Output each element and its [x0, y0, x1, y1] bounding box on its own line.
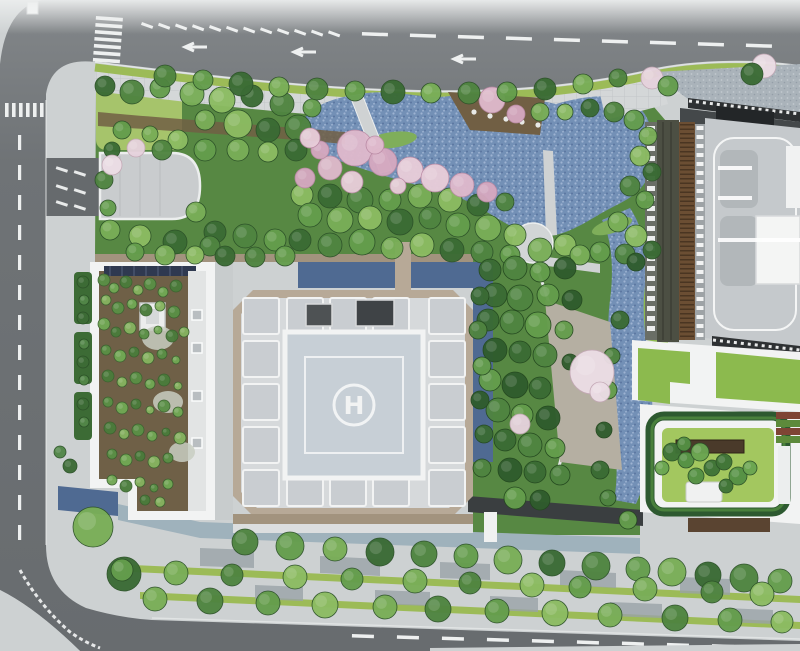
tree-highlight — [294, 187, 304, 197]
tree-highlight — [104, 398, 109, 403]
tree-highlight — [158, 350, 163, 355]
tree-highlight — [645, 243, 653, 251]
tree-highlight — [141, 496, 146, 501]
center-dash — [18, 315, 21, 330]
tree-highlight — [475, 461, 483, 469]
tree-highlight — [80, 340, 85, 345]
tree-highlight — [521, 436, 532, 447]
crosswalk-bar — [40, 103, 44, 117]
tree-highlight — [548, 441, 557, 450]
tree-highlight — [629, 255, 637, 263]
tree-highlight — [56, 448, 61, 453]
tree-highlight — [140, 330, 145, 335]
tree-highlight — [537, 81, 547, 91]
tree-highlight — [167, 564, 178, 575]
tree-highlight — [557, 323, 565, 331]
tree-highlight — [613, 313, 621, 321]
tree-highlight — [286, 568, 297, 579]
tree-highlight — [128, 245, 136, 253]
tree-highlight — [665, 608, 677, 620]
tower-south-terrace — [233, 524, 473, 533]
tree-highlight — [116, 352, 121, 357]
tree-highlight — [545, 603, 557, 615]
tree-highlight — [278, 249, 287, 258]
helipad-label: H — [344, 391, 365, 420]
tree-highlight — [486, 341, 497, 352]
tree-highlight — [136, 478, 141, 483]
tree-highlight — [106, 424, 111, 429]
tree-highlight — [79, 358, 84, 363]
tree-highlight — [553, 468, 562, 477]
tree-highlight — [114, 562, 124, 572]
tree-highlight — [197, 142, 207, 152]
tree-highlight — [443, 241, 454, 252]
tree-highlight — [305, 101, 313, 109]
tree-highlight — [531, 241, 542, 252]
tree-highlight — [576, 77, 585, 86]
tree-highlight — [665, 445, 673, 453]
tree-highlight — [155, 143, 164, 152]
tree-highlight — [441, 191, 452, 202]
tree-highlight — [721, 481, 727, 487]
tree-highlight — [536, 346, 547, 357]
tree-highlight — [565, 293, 574, 302]
center-dash — [18, 375, 21, 390]
tree-highlight — [623, 179, 632, 188]
tree-highlight — [482, 90, 494, 102]
tree-highlight — [633, 149, 642, 158]
tree-highlight — [453, 176, 464, 187]
center-dash — [18, 255, 21, 270]
center-dash — [18, 165, 21, 180]
tree-highlight — [288, 118, 300, 130]
tree-highlight — [155, 327, 159, 331]
tree-highlight — [657, 463, 663, 469]
tree-highlight — [480, 312, 490, 322]
tree-highlight — [200, 591, 212, 603]
louvered-band — [657, 120, 679, 342]
tree-highlight — [163, 429, 167, 433]
tree-highlight — [498, 550, 511, 563]
tree-highlight — [120, 430, 125, 435]
tree-highlight — [557, 260, 567, 270]
crosswalk-bar — [19, 103, 23, 117]
tree-highlight — [132, 228, 142, 238]
tree-highlight — [280, 536, 293, 549]
center-dash — [18, 435, 21, 450]
equipment-well — [306, 304, 332, 326]
tree-highlight — [583, 101, 591, 109]
tree-highlight — [175, 383, 179, 387]
tree-highlight — [102, 296, 107, 301]
tree-highlight — [103, 223, 112, 232]
tree-highlight — [224, 567, 234, 577]
tree-highlight — [130, 348, 135, 353]
tree-highlight — [115, 123, 123, 131]
tree-highlight — [598, 424, 605, 431]
tree-highlight — [65, 461, 71, 467]
tree-highlight — [203, 239, 212, 248]
tree-highlight — [108, 450, 113, 455]
tree-highlight — [102, 346, 107, 351]
tree-highlight — [344, 571, 354, 581]
tree-highlight — [97, 173, 105, 181]
tree-highlight — [745, 463, 751, 469]
tree-highlight — [80, 376, 85, 381]
timber-slat-band — [679, 122, 695, 340]
tree-highlight — [196, 73, 205, 82]
tree-highlight — [505, 375, 517, 387]
site-plan-rendering: H — [0, 0, 800, 651]
tree-highlight — [475, 359, 483, 367]
tree-highlight — [680, 454, 687, 461]
tree-highlight — [601, 606, 612, 617]
center-dash — [18, 345, 21, 360]
tree-highlight — [228, 114, 241, 127]
tree-highlight — [507, 490, 517, 500]
crosswalk-bar — [33, 103, 37, 117]
tree-highlight — [507, 227, 517, 237]
center-dash — [18, 195, 21, 210]
tree-highlight — [330, 210, 342, 222]
street-planter — [688, 518, 770, 532]
tree-highlight — [542, 553, 554, 565]
tree-highlight — [156, 302, 161, 307]
tree-highlight — [174, 408, 179, 413]
tree-highlight — [122, 482, 127, 487]
tree-highlight — [198, 113, 207, 122]
tree-highlight — [753, 585, 764, 596]
crosswalk-bar — [5, 103, 9, 117]
crosswalk-bar — [12, 103, 16, 117]
tree-highlight — [618, 247, 627, 256]
tree-highlight — [474, 244, 484, 254]
tree-highlight — [144, 354, 149, 359]
center-dash — [18, 135, 21, 150]
tree-highlight — [315, 595, 327, 607]
tree-highlight — [309, 81, 319, 91]
tree-highlight — [471, 323, 479, 331]
tree-highlight — [151, 485, 155, 489]
tree-highlight — [126, 324, 131, 329]
tree-highlight — [342, 135, 358, 151]
tree-highlight — [80, 418, 85, 423]
tree-highlight — [301, 206, 312, 217]
tree-highlight — [236, 227, 247, 238]
tree-highlight — [348, 84, 357, 93]
parking-driveway — [45, 153, 200, 219]
tree-highlight — [259, 594, 270, 605]
tree-highlight — [503, 313, 514, 324]
tree-highlight — [288, 142, 298, 152]
tree-highlight — [489, 401, 500, 412]
tree-highlight — [533, 105, 541, 113]
tree-highlight — [693, 445, 701, 453]
tree-highlight — [470, 197, 480, 207]
tree-highlight — [207, 224, 217, 234]
tree-highlight — [498, 195, 506, 203]
tree-highlight — [132, 374, 137, 379]
tree-highlight — [100, 276, 105, 281]
tree-highlight — [176, 434, 181, 439]
tree-highlight — [607, 105, 616, 114]
tree-highlight — [611, 215, 620, 224]
center-dash — [18, 525, 21, 540]
tree-highlight — [645, 165, 653, 173]
tower-module — [243, 298, 279, 334]
tree-highlight — [164, 454, 169, 459]
tree-highlight — [102, 202, 109, 209]
tree-highlight — [477, 427, 485, 435]
tower-module — [429, 384, 465, 420]
center-dash — [18, 405, 21, 420]
tree-highlight — [146, 380, 151, 385]
tree-highlight — [513, 417, 522, 426]
tree-highlight — [361, 209, 372, 220]
tree-highlight — [144, 128, 151, 135]
tower-south-wall — [233, 514, 473, 524]
tree-highlight — [611, 71, 619, 79]
tree-highlight — [704, 584, 714, 594]
tower-module — [429, 298, 465, 334]
tree-highlight — [352, 232, 364, 244]
tree-highlight — [159, 288, 164, 293]
tree-highlight — [172, 282, 177, 287]
tree-highlight — [698, 565, 710, 577]
tree-highlight — [478, 218, 490, 230]
tree-highlight — [721, 611, 732, 622]
tree-highlight — [528, 315, 540, 327]
tree-highlight — [188, 248, 196, 256]
tree-highlight — [506, 259, 517, 270]
tower-module — [429, 470, 465, 506]
court-pad-2 — [720, 216, 758, 286]
tree-highlight — [533, 265, 542, 274]
court-walk — [778, 446, 790, 504]
tree-highlight — [662, 562, 675, 575]
tree-highlight — [638, 193, 646, 201]
tree-highlight — [118, 378, 123, 383]
tree-highlight — [267, 232, 277, 242]
tree-highlight — [510, 288, 522, 300]
tree-highlight — [413, 236, 424, 247]
driveway-approach — [45, 158, 103, 216]
tree-highlight — [171, 133, 180, 142]
tree-highlight — [731, 469, 739, 477]
tree-highlight — [641, 129, 649, 137]
tree-highlight — [532, 380, 542, 390]
tree-highlight — [123, 83, 134, 94]
north-moat — [298, 262, 473, 288]
tree-highlight — [572, 579, 582, 589]
tree-highlight — [661, 79, 670, 88]
tree-highlight — [321, 236, 332, 247]
tower-module — [243, 341, 279, 377]
tower-module — [243, 384, 279, 420]
tree-highlight — [414, 544, 426, 556]
tree-highlight — [298, 171, 307, 180]
tree-highlight — [384, 83, 395, 94]
center-dash — [18, 465, 21, 480]
tree-highlight — [734, 568, 747, 581]
tree-highlight — [406, 572, 417, 583]
tree-highlight — [509, 107, 517, 115]
center-dash — [18, 495, 21, 510]
central-tower: H — [215, 262, 473, 533]
tree-highlight — [384, 240, 394, 250]
tree-highlight — [132, 400, 137, 405]
tree-highlight — [170, 308, 175, 313]
tree-highlight — [104, 372, 109, 377]
tree-highlight — [303, 131, 312, 140]
tree-highlight — [189, 205, 198, 214]
tree-highlight — [259, 121, 270, 132]
tree-highlight — [593, 463, 601, 471]
tree-highlight — [160, 376, 165, 381]
lawn-panel-east — [716, 352, 800, 404]
tree-highlight — [150, 458, 155, 463]
tree-highlight — [78, 512, 96, 530]
tree-highlight — [146, 280, 151, 285]
tree-highlight — [488, 602, 499, 613]
tree-highlight — [112, 328, 117, 333]
tree-highlight — [503, 248, 512, 257]
tree-highlight — [370, 542, 383, 555]
tree-highlight — [636, 580, 647, 591]
tree-highlight — [382, 192, 392, 202]
tree-highlight — [164, 480, 169, 485]
tree-highlight — [129, 141, 137, 149]
tower-module — [429, 341, 465, 377]
tree-highlight — [392, 180, 399, 187]
tower-west-walk — [215, 262, 233, 520]
tree-highlight — [79, 314, 84, 319]
tree-highlight — [173, 357, 177, 361]
tree-highlight — [422, 210, 432, 220]
tree-highlight — [593, 385, 602, 394]
tree-highlight — [158, 248, 167, 257]
tree-highlight — [180, 328, 185, 333]
tree-highlight — [128, 300, 133, 305]
tree-highlight — [106, 144, 113, 151]
tree-highlight — [533, 493, 542, 502]
tree-highlight — [136, 452, 141, 457]
tree-highlight — [512, 344, 522, 354]
tree-highlight — [235, 532, 247, 544]
garden-pavilion — [686, 482, 722, 502]
tree-highlight — [232, 75, 243, 86]
tree-highlight — [573, 248, 582, 257]
tree-highlight — [457, 547, 468, 558]
equipment-well — [356, 300, 394, 326]
tree-highlight — [98, 79, 107, 88]
tree-highlight — [147, 407, 151, 411]
tree-highlight — [368, 138, 376, 146]
tree-highlight — [774, 614, 784, 624]
crosswalk-bar — [26, 103, 30, 117]
tree-highlight — [272, 80, 281, 89]
tree-highlight — [718, 456, 725, 463]
tree-highlight — [425, 168, 438, 181]
tree-highlight — [501, 461, 512, 472]
tree-highlight — [586, 556, 599, 569]
tree-highlight — [166, 233, 177, 244]
tree-highlight — [500, 85, 509, 94]
tree-highlight — [564, 356, 571, 363]
tree-highlight — [326, 540, 337, 551]
tree-highlight — [108, 476, 113, 481]
tree-highlight — [473, 289, 481, 297]
tree-highlight — [690, 470, 697, 477]
tree-highlight — [628, 228, 638, 238]
tree-highlight — [629, 560, 640, 571]
tree-highlight — [706, 462, 713, 469]
tree-highlight — [134, 286, 139, 291]
tree-highlight — [80, 296, 85, 301]
building-wing — [786, 146, 800, 208]
tree-highlight — [744, 66, 754, 76]
tree-highlight — [100, 320, 105, 325]
tree-highlight — [627, 113, 636, 122]
tree-highlight — [344, 174, 354, 184]
tree-highlight — [79, 400, 84, 405]
tree-highlight — [461, 85, 471, 95]
tree-highlight — [576, 356, 596, 376]
tree-highlight — [400, 160, 412, 172]
entrance-canopy — [756, 216, 800, 284]
tree-highlight — [261, 145, 270, 154]
tree-highlight — [118, 404, 123, 409]
tree-highlight — [644, 70, 654, 80]
tree-highlight — [321, 187, 332, 198]
tree-highlight — [602, 492, 609, 499]
tree-highlight — [390, 212, 402, 224]
tree-highlight — [621, 513, 629, 521]
tree-highlight — [110, 284, 115, 289]
tower-module — [429, 427, 465, 463]
tree-highlight — [157, 68, 167, 78]
tree-highlight — [79, 278, 84, 283]
tree-highlight — [482, 262, 492, 272]
tree-highlight — [424, 86, 433, 95]
tree-highlight — [480, 185, 489, 194]
tree-highlight — [428, 599, 440, 611]
tree-highlight — [156, 498, 161, 503]
tree-highlight — [292, 232, 302, 242]
site-plan-canvas: H — [0, 0, 800, 651]
tree-highlight — [559, 106, 566, 113]
tree-highlight — [230, 142, 240, 152]
tree-highlight — [557, 237, 567, 247]
tree-highlight — [411, 187, 422, 198]
tree-highlight — [122, 278, 127, 283]
tree-highlight — [593, 245, 602, 254]
tree-highlight — [523, 576, 534, 587]
tree-highlight — [540, 287, 550, 297]
tree-highlight — [134, 426, 139, 431]
tree-highlight — [148, 432, 153, 437]
tree-highlight — [449, 216, 460, 227]
tree-highlight — [114, 304, 119, 309]
tree-highlight — [122, 456, 127, 461]
tree-highlight — [160, 402, 165, 407]
tree-highlight — [146, 590, 157, 601]
tree-highlight — [473, 393, 481, 401]
tree-highlight — [376, 598, 387, 609]
tree-highlight — [105, 158, 114, 167]
tree-highlight — [462, 575, 472, 585]
tree-highlight — [539, 409, 550, 420]
